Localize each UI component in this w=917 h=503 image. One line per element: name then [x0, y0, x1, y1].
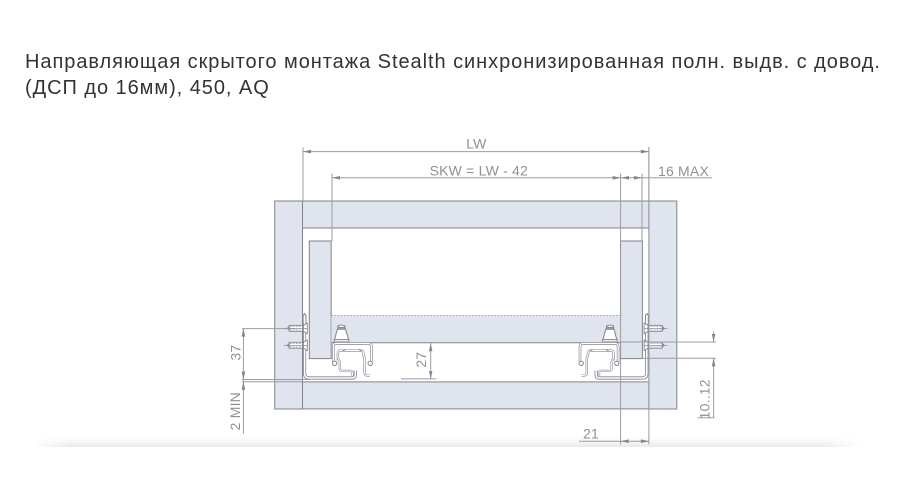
svg-text:10..12: 10..12: [697, 379, 713, 419]
svg-text:SKW = LW - 42: SKW = LW - 42: [430, 163, 528, 179]
svg-text:27: 27: [413, 352, 429, 368]
svg-text:21: 21: [583, 425, 599, 441]
svg-text:LW: LW: [466, 135, 487, 151]
svg-text:2 MIN: 2 MIN: [227, 392, 243, 430]
svg-text:16 MAX: 16 MAX: [658, 163, 709, 179]
svg-text:37: 37: [227, 345, 243, 361]
